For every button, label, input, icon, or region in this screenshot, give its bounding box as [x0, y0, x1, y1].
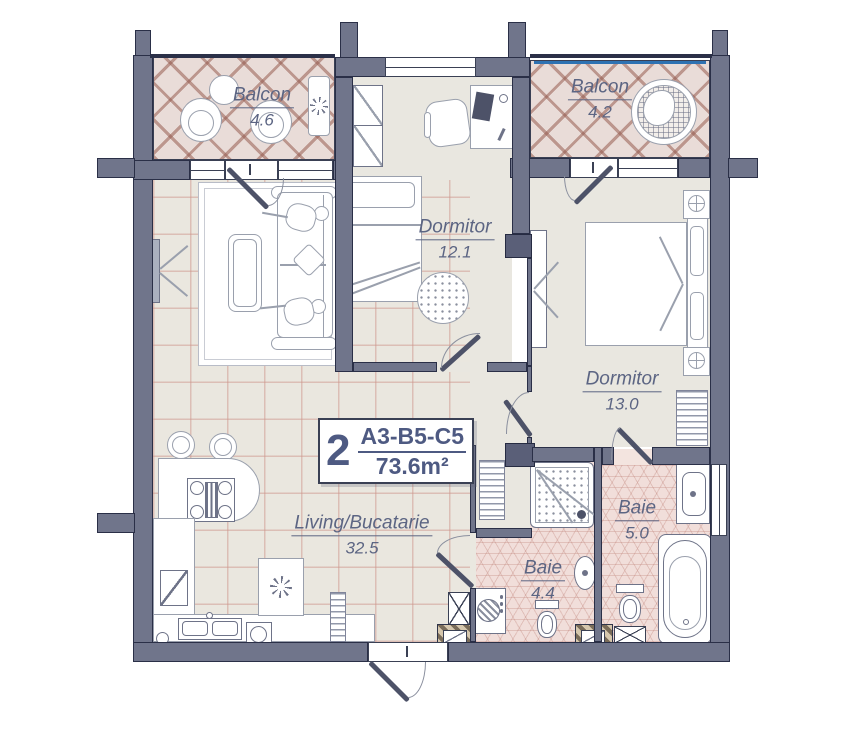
wall-bedrooms-divider [512, 77, 530, 234]
wall-left [133, 55, 153, 662]
window-balcony-left-b [278, 160, 333, 180]
window-balcony-left-a [190, 160, 225, 180]
wall-right [710, 55, 730, 662]
label-balcony-right: Balcon 4.2 [568, 76, 632, 121]
wall-bottom-right [448, 642, 730, 662]
wall-niche-bottom [476, 528, 532, 538]
bed-bedroom-right [585, 222, 687, 346]
label-balcony-right-area: 4.2 [568, 102, 632, 122]
pillar-hall [505, 443, 535, 467]
bath-large-sink [676, 464, 710, 524]
toilet-small-bowl [537, 611, 557, 638]
stub-left-top [97, 158, 135, 178]
unit-info-box: 2 A3-B5-C5 73.6m² [318, 418, 474, 484]
kitchen-sink [178, 618, 242, 640]
bedroom-right-radiator [676, 390, 708, 446]
window-bedroom-top [385, 57, 476, 77]
bathtub [658, 534, 712, 644]
wall-hall-bedroom-a [527, 366, 532, 392]
stub-top-b [508, 22, 526, 58]
kitchen-radiator [330, 592, 346, 642]
label-bath-large: Baie 5.0 [615, 497, 659, 542]
stub-right-side [728, 158, 758, 178]
unit-code-area: A3-B5-C5 73.6m² [358, 423, 466, 479]
hall-radiator [479, 460, 505, 520]
wall-top-bedroom-left [335, 57, 387, 77]
label-bath-large-name: Baie [615, 497, 659, 521]
shower-head [577, 510, 586, 519]
nightstand-2 [683, 347, 710, 376]
label-balcony-left: Balcon 4.6 [230, 84, 294, 129]
door-arc-entrance [408, 662, 426, 698]
label-bath-small: Baie 4.4 [521, 557, 565, 602]
wardrobe-bedroom-right [530, 230, 547, 348]
label-bedroom-right-area: 13.0 [583, 394, 662, 414]
washing-machine [472, 588, 506, 634]
wall-baths-divider [594, 447, 602, 642]
wall-living-bedroom-top [335, 77, 353, 372]
label-balcony-right-name: Balcon [568, 76, 632, 100]
label-living-kitchen: Living/Bucatarie 32.5 [291, 512, 432, 557]
pillow-right-2 [690, 292, 704, 340]
wall-under-balcony-left-a [133, 160, 190, 180]
label-bedroom-top-name: Dormitor [416, 216, 495, 240]
wall-bottom-left [133, 642, 368, 662]
label-bath-small-area: 4.4 [521, 583, 565, 603]
table-plant-icon [270, 576, 292, 598]
window-bath-large [711, 464, 727, 536]
round-rug [417, 272, 469, 324]
desk-gadget [499, 94, 508, 103]
unit-code: A3-B5-C5 [358, 423, 466, 452]
door-frame-tick-balcony-left [249, 164, 251, 175]
tall-cabinet [448, 592, 470, 626]
wall-below-bedroom-top-a [353, 362, 437, 372]
toilet-large-tank [616, 584, 644, 593]
wall-top-bedroom-right [474, 57, 530, 77]
wall-bath-large-top-b [652, 447, 710, 465]
unit-area: 73.6m² [358, 453, 466, 479]
label-bedroom-right-name: Dormitor [583, 368, 662, 392]
sofa-armrest-bottom [271, 337, 337, 350]
wall-below-bedroom-top-b [487, 362, 527, 372]
label-bath-small-name: Baie [521, 557, 565, 581]
toilet-large-bowl [619, 595, 641, 623]
wall-bath-small-top [532, 447, 594, 462]
pillow-bedroom-top [343, 182, 415, 208]
pillow-right-1 [690, 226, 704, 276]
nightstand-1 [683, 190, 710, 219]
stub-top-left-corner [135, 30, 151, 56]
stub-top-a [340, 22, 358, 58]
bath-small-sink [574, 556, 596, 590]
label-living-kitchen-name: Living/Bucatarie [291, 512, 432, 536]
balcony-left-railing [150, 54, 335, 58]
label-balcony-left-area: 4.6 [230, 110, 294, 130]
wall-under-balcony-right-b [678, 158, 710, 178]
balcony-right-railing [530, 54, 712, 58]
faucet [206, 612, 213, 619]
planter-flower-icon [310, 97, 328, 115]
door-leaf-entrance [368, 661, 410, 703]
stub-top-right-corner [712, 30, 728, 56]
desk-chair-back [424, 112, 431, 138]
wardrobe-bedroom-top [353, 85, 383, 167]
wall-living-bath-b [470, 588, 476, 642]
label-bedroom-right: Dormitor 13.0 [583, 368, 662, 413]
desk-chair [424, 97, 472, 148]
label-balcony-left-name: Balcon [230, 84, 294, 108]
electric-panel [160, 570, 188, 606]
label-bedroom-top: Dormitor 12.1 [416, 216, 495, 261]
window-balcony-right [618, 158, 678, 178]
cooktop [187, 478, 235, 522]
label-living-kitchen-area: 32.5 [291, 538, 432, 558]
door-frame-tick-balcony-right [592, 162, 594, 173]
balcony-chair-1-seat [188, 110, 214, 136]
label-bath-large-area: 5.0 [615, 523, 659, 543]
wall-slide-bedroom-right [527, 258, 532, 366]
bar-stool-2-seat [214, 438, 232, 456]
label-bedroom-top-area: 12.1 [416, 242, 495, 262]
unit-number: 2 [326, 429, 350, 473]
entrance-door-opening [368, 642, 448, 662]
stub-left-bottom [97, 513, 135, 533]
door-opening-bath-small [470, 533, 476, 588]
coffee-table [228, 234, 262, 312]
pillar-mid [505, 234, 532, 258]
tv [152, 239, 160, 303]
floor-plan: Balcon 4.6 Balcon 4.2 Dormitor 12.1 Dorm… [0, 0, 862, 740]
glass-railing-blue [534, 61, 706, 64]
entrance-door-tick [406, 646, 408, 657]
bar-stool-1-seat [172, 436, 190, 454]
